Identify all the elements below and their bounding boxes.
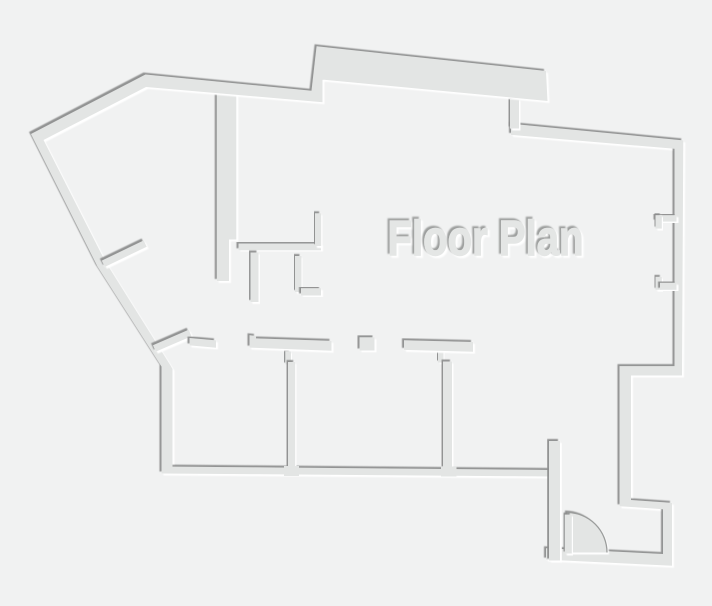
svg-text:Floor Plan: Floor Plan — [388, 212, 584, 266]
